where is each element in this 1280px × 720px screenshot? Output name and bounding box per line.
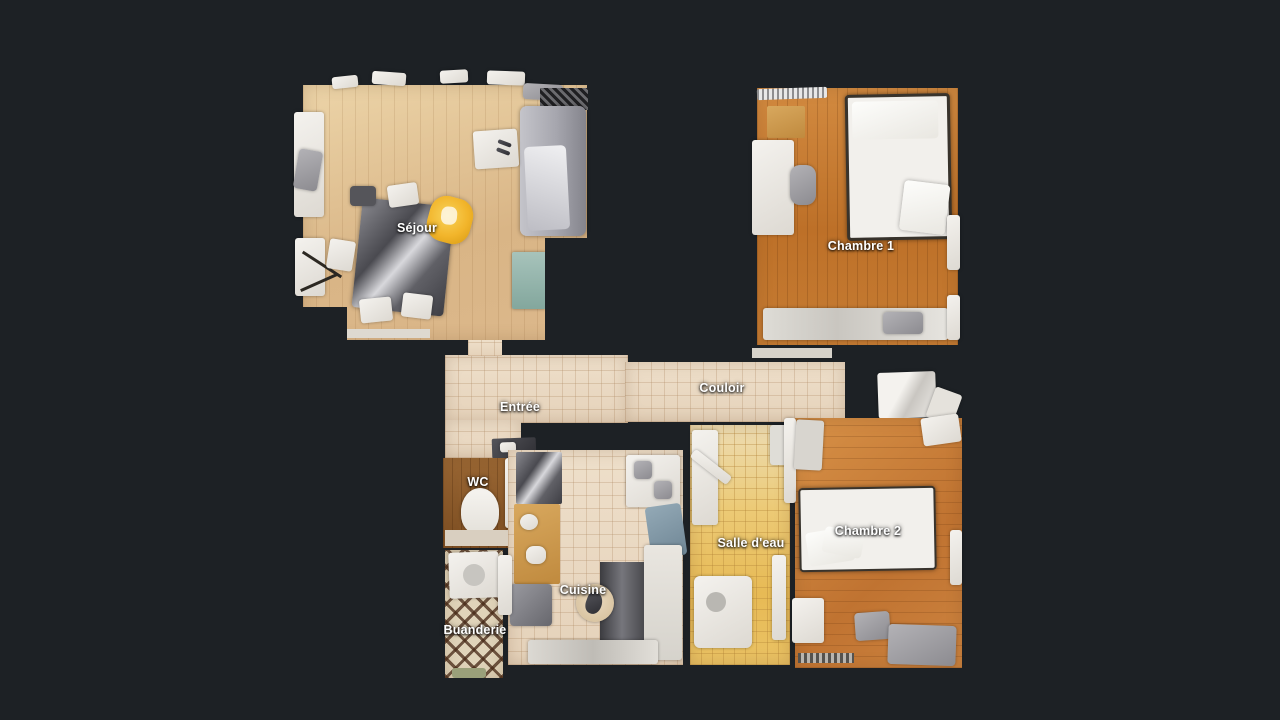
room-couloir[interactable] bbox=[625, 362, 845, 422]
toilet bbox=[461, 488, 499, 534]
room-chambre2[interactable] bbox=[795, 418, 962, 668]
nightstand-wood bbox=[767, 106, 805, 138]
dining-chair-left bbox=[326, 238, 356, 272]
buanderie-door bbox=[498, 555, 512, 615]
shower-drain bbox=[706, 592, 726, 612]
storage-items bbox=[883, 312, 923, 334]
bottom-wall-strip bbox=[345, 329, 430, 338]
remote-2 bbox=[496, 147, 511, 156]
wall-paper-3 bbox=[440, 69, 469, 83]
plants-bottom bbox=[452, 668, 486, 678]
dining-chair-bottom-1 bbox=[359, 296, 393, 323]
desk bbox=[752, 140, 794, 235]
room-cuisine[interactable] bbox=[508, 450, 683, 665]
sink-basin-1 bbox=[634, 461, 652, 479]
corner-curtain bbox=[794, 419, 825, 470]
appliance-left bbox=[510, 584, 552, 626]
room-buanderie[interactable] bbox=[445, 550, 503, 678]
sink-basin-2 bbox=[654, 481, 672, 499]
wall-paper-1 bbox=[331, 75, 358, 90]
floorplan-viewer: Séjour Chambre 1 Entrée Couloir WC Cuisi… bbox=[0, 0, 1280, 720]
stool bbox=[576, 584, 614, 622]
side-table bbox=[473, 129, 520, 170]
pouf-small bbox=[854, 611, 891, 641]
radiator bbox=[757, 87, 827, 100]
bed-folded-blanket bbox=[899, 180, 951, 235]
remote-1 bbox=[497, 139, 512, 148]
stove bbox=[516, 452, 562, 504]
wc-floor-light-strip bbox=[445, 530, 513, 546]
radiator-right bbox=[772, 555, 786, 640]
wall-paper-4 bbox=[487, 70, 525, 85]
teal-cabinet bbox=[512, 252, 546, 309]
sink-column bbox=[692, 430, 718, 525]
washing-machine bbox=[448, 551, 500, 599]
dishes-1 bbox=[520, 514, 538, 530]
sofa bbox=[520, 106, 586, 236]
desk-chair bbox=[790, 165, 816, 205]
room-entree[interactable] bbox=[445, 355, 628, 423]
door-panel-right bbox=[950, 530, 962, 585]
dining-chair-bottom-2 bbox=[401, 292, 434, 319]
door-panel-right-2 bbox=[947, 295, 960, 340]
bed bbox=[798, 486, 936, 572]
sofa-blanket bbox=[524, 145, 570, 231]
washer-door bbox=[463, 564, 486, 587]
room-salle-deau[interactable] bbox=[690, 425, 790, 665]
wall-notch-bottom-left bbox=[303, 307, 347, 340]
lamp-highlight bbox=[440, 206, 458, 225]
sink-counter bbox=[626, 455, 680, 507]
counter-bottom bbox=[528, 640, 658, 664]
chambre1-bottom-wall bbox=[752, 348, 832, 358]
wardrobe-top-right bbox=[920, 413, 962, 446]
counter-left bbox=[514, 504, 560, 584]
room-wc[interactable] bbox=[443, 458, 515, 548]
bed-pillows bbox=[852, 100, 939, 139]
shower-tray bbox=[694, 576, 752, 648]
room-chambre1[interactable] bbox=[757, 88, 958, 345]
door-panel-right-1 bbox=[947, 215, 960, 270]
storage-bottom-wall bbox=[763, 308, 948, 340]
door-mat bbox=[798, 653, 854, 663]
doorway-sejour-entree bbox=[468, 340, 502, 356]
wall-paper-2 bbox=[372, 71, 407, 86]
dining-chair-top bbox=[387, 182, 420, 208]
wall-notch-bottom-right bbox=[545, 238, 587, 340]
floorplan[interactable]: Séjour Chambre 1 Entrée Couloir WC Cuisi… bbox=[0, 0, 1280, 720]
desk-bottom-left bbox=[792, 598, 824, 643]
dishes-2 bbox=[526, 546, 546, 564]
stool-object bbox=[583, 590, 606, 616]
bed bbox=[845, 93, 953, 241]
dining-chair-top-dark bbox=[350, 186, 376, 206]
bench-gray bbox=[887, 624, 956, 666]
room-sejour[interactable] bbox=[303, 85, 587, 340]
